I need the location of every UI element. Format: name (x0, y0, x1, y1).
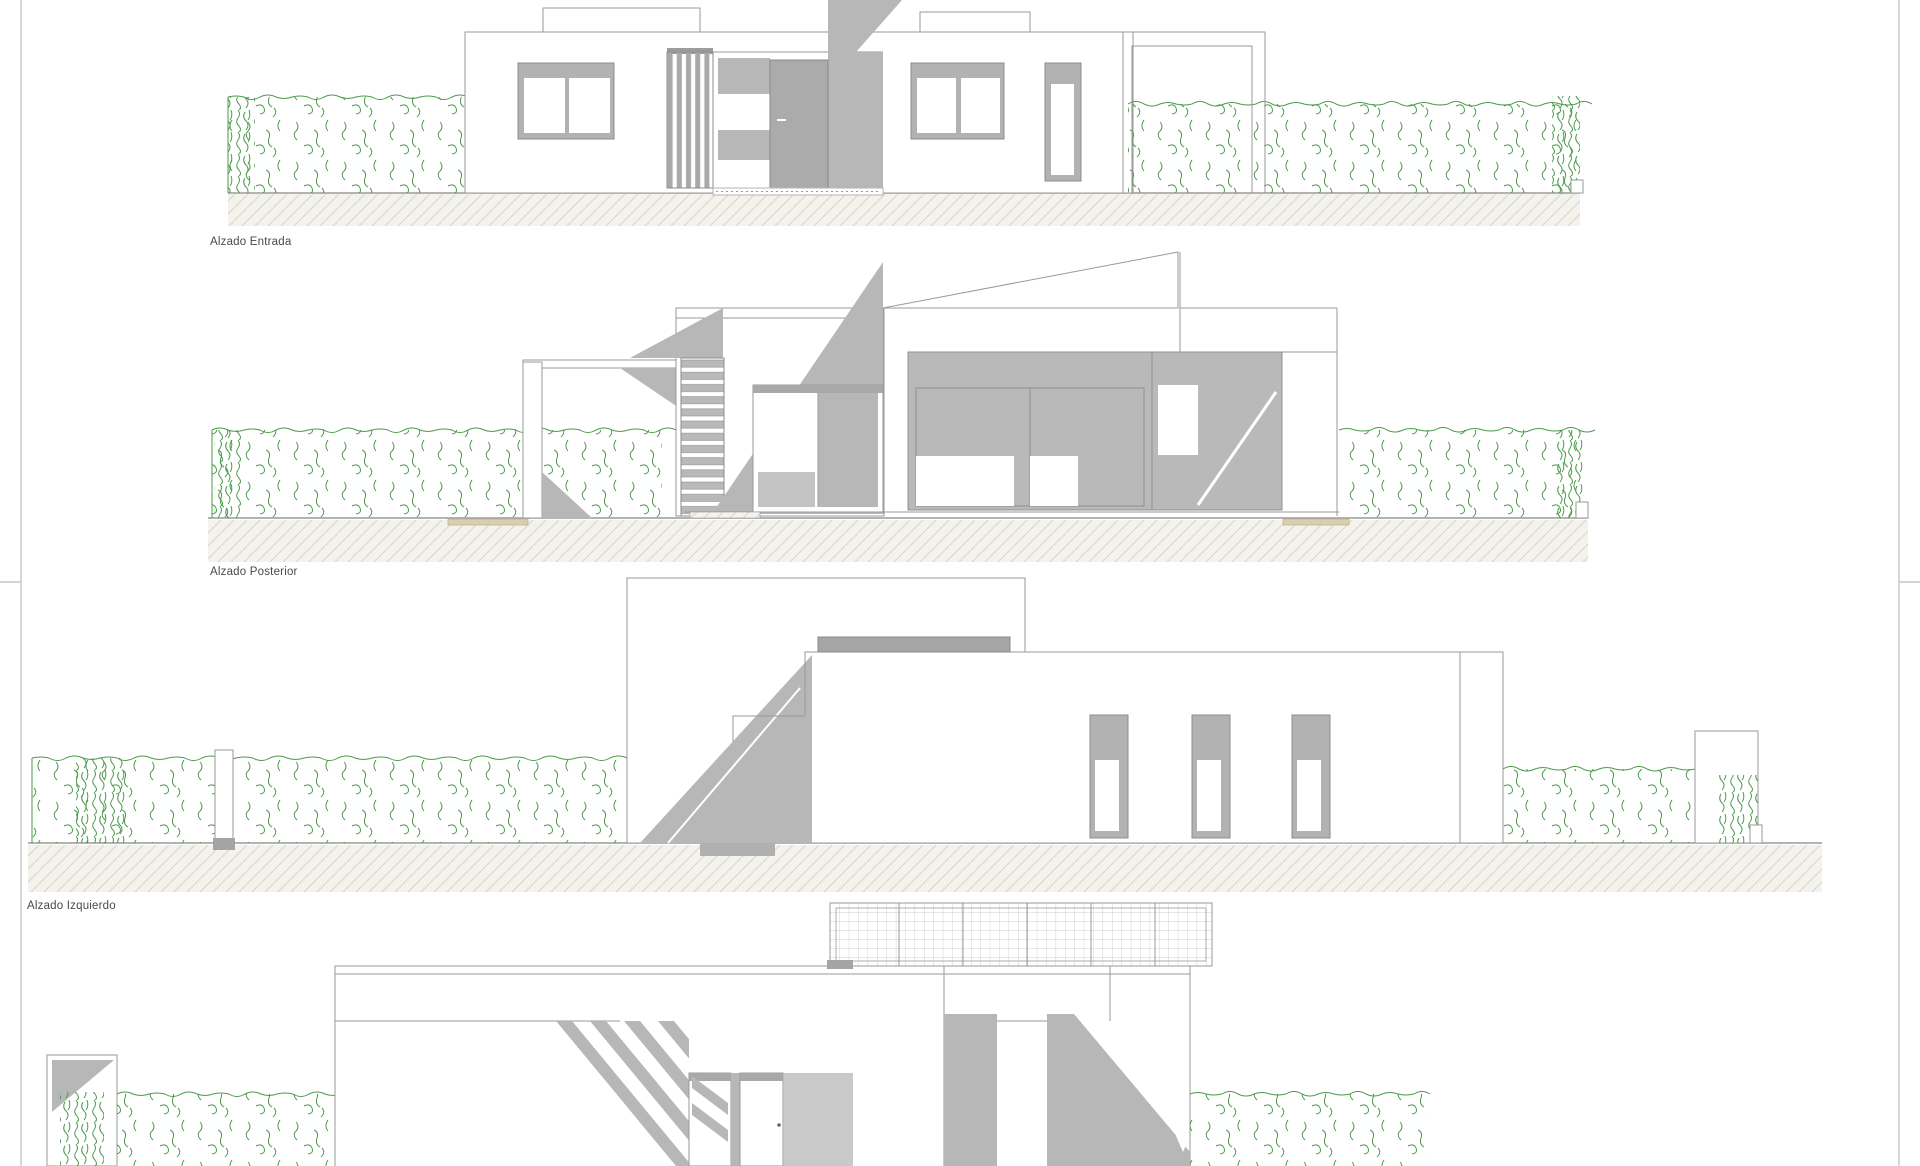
label-alzado-izquierdo: Alzado Izquierdo (27, 900, 116, 912)
elevation-cuarta-drawing (47, 903, 1430, 1166)
door-2 (740, 1073, 783, 1166)
sliding-door-right (1152, 352, 1282, 510)
elevation-izquierdo-drawing (28, 578, 1822, 892)
window-2 (911, 63, 1004, 139)
window-narrow (1045, 63, 1081, 181)
entry-door (770, 60, 828, 188)
sloped-roof (883, 252, 1178, 308)
louver-screen (667, 52, 713, 188)
elevation-entrada-drawing (228, 0, 1592, 226)
elevation-posterior-drawing (208, 252, 1595, 562)
pergola-beam (523, 360, 685, 368)
stair-louver (681, 358, 724, 516)
elevations-drawing (0, 0, 1920, 1166)
slot-windows (1090, 715, 1330, 838)
pergola-post (523, 362, 542, 518)
gate-post (215, 750, 233, 843)
label-alzado-posterior: Alzado Posterior (210, 566, 298, 578)
roof-cap (818, 637, 1010, 652)
window-1 (518, 63, 614, 139)
label-alzado-entrada: Alzado Entrada (210, 236, 291, 248)
sliding-door-center (908, 352, 1152, 510)
sliding-door-left (753, 385, 883, 512)
drawing-sheet: Alzado Entrada Alzado Posterior Alzado I… (0, 0, 1920, 1166)
roof-lattice (827, 903, 1212, 969)
